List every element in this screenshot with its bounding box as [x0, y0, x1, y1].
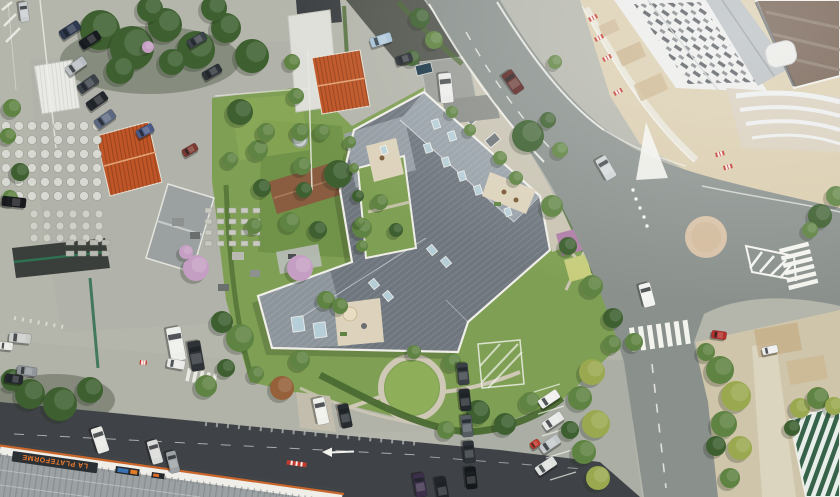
light-haze — [0, 0, 840, 497]
aerial-photo-svg: LA PLATEFORME — [0, 0, 840, 497]
aerial-view: LA PLATEFORME — [0, 0, 840, 497]
